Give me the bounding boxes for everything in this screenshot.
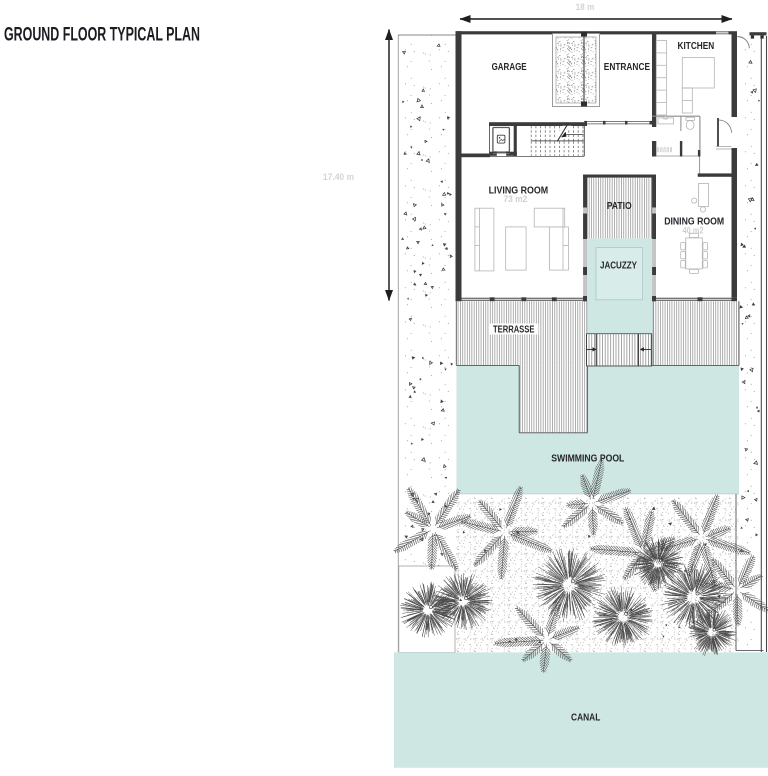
svg-text:JACUZZY: JACUZZY <box>600 260 637 271</box>
svg-text:TERRASSE: TERRASSE <box>493 324 535 335</box>
svg-text:18 m: 18 m <box>576 2 595 12</box>
svg-text:GARAGE: GARAGE <box>492 62 527 73</box>
svg-text:17.40 m: 17.40 m <box>323 172 354 182</box>
svg-text:PATIO: PATIO <box>607 201 632 212</box>
svg-text:CANAL: CANAL <box>571 713 600 724</box>
svg-text:40 m2: 40 m2 <box>682 226 703 237</box>
svg-text:73 m2: 73 m2 <box>503 194 527 205</box>
svg-text:ENTRANCE: ENTRANCE <box>604 62 650 73</box>
svg-text:GROUND FLOOR TYPICAL PLAN: GROUND FLOOR TYPICAL PLAN <box>4 24 200 46</box>
svg-text:KITCHEN: KITCHEN <box>678 41 715 52</box>
svg-text:SWIMMING POOL: SWIMMING POOL <box>551 453 624 464</box>
